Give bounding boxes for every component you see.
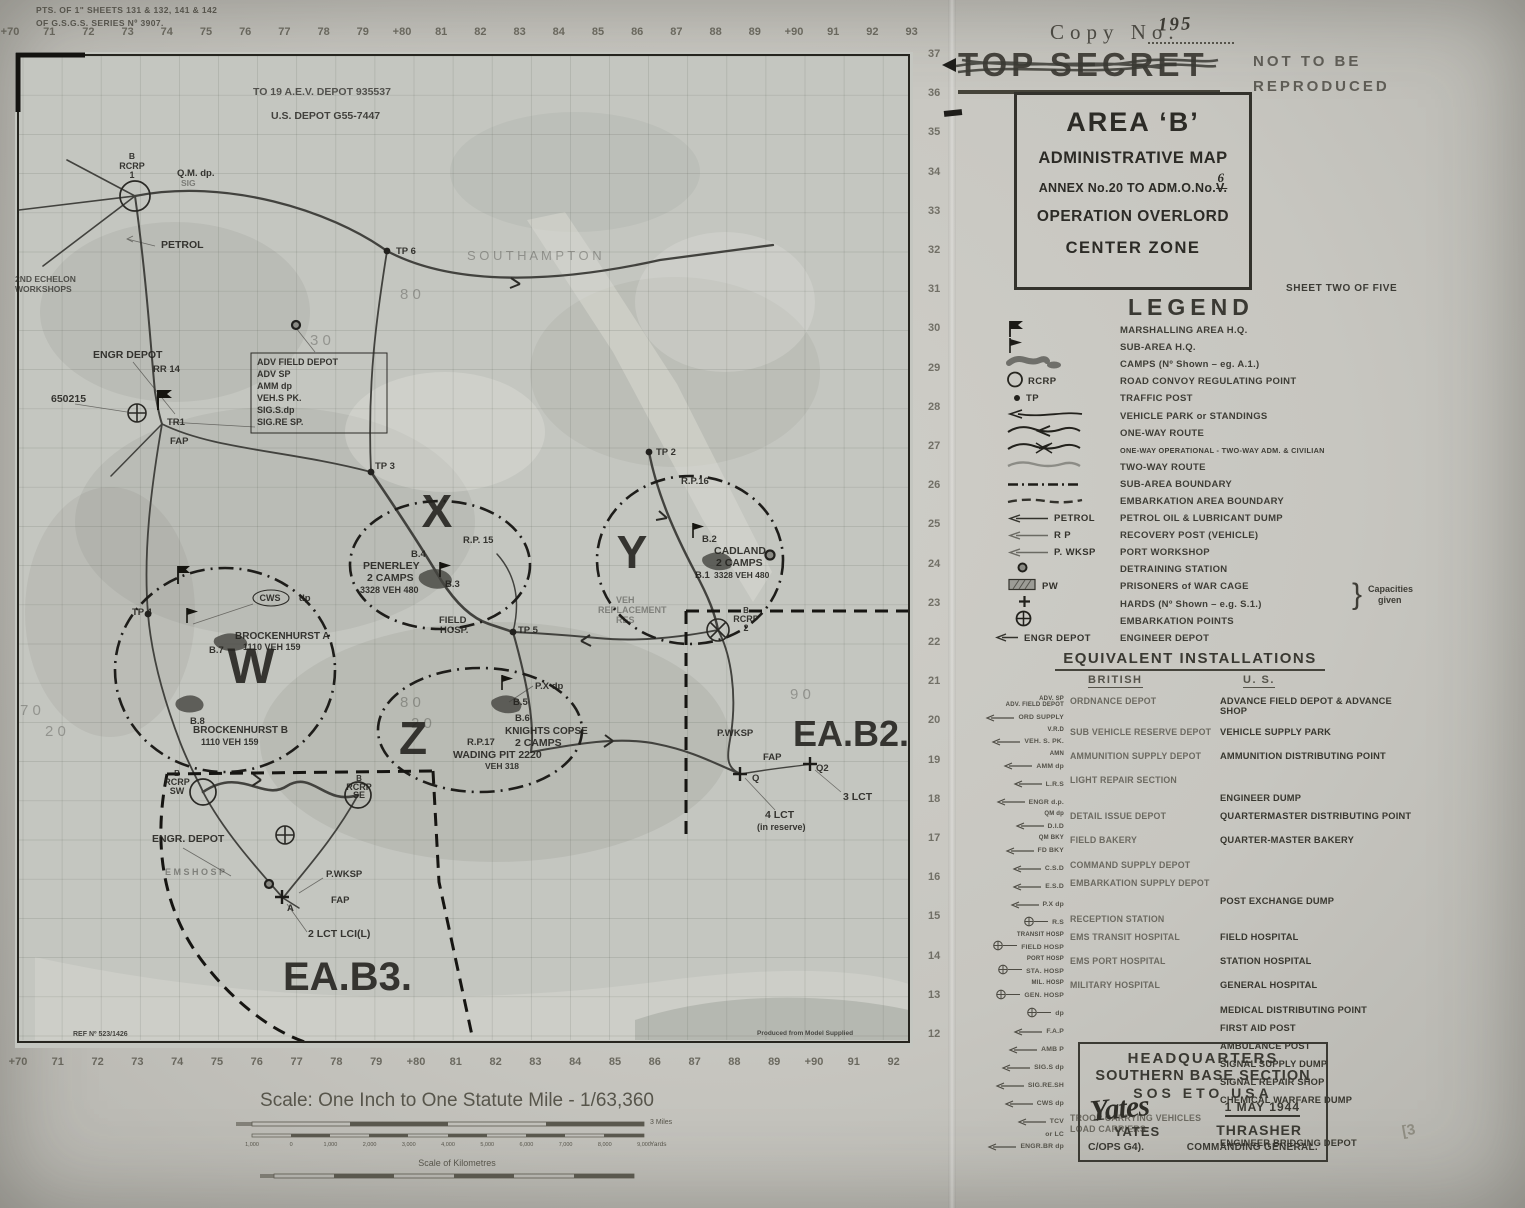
grid-number: 72 (82, 26, 94, 38)
equivalents-row: PORT HOSPSTA. HOSPEMS PORT HOSPITALSTATI… (968, 956, 1414, 980)
map-label: 2 (743, 623, 748, 633)
map-label: 7 0 (20, 702, 41, 719)
equivalents-symbol-cell: ADV. SPADV. FIELD DEPOTORD SUPPLY (968, 696, 1070, 727)
map-region-label: X (422, 485, 453, 537)
arrow-icon (985, 709, 1015, 727)
equivalents-symbol-cell: AMB P (968, 1041, 1070, 1059)
two-way-route-icon (1006, 458, 1084, 476)
map-label: 650215 (51, 393, 86, 405)
grid-number: 20 (928, 714, 940, 726)
copy-number-value: 195 (1158, 13, 1193, 36)
map-label: BROCKENHURST A (235, 631, 330, 642)
equivalents-row: V.R.DVEH. S. PK.SUB VEHICLE RESERVE DEPO… (968, 727, 1414, 751)
capacities-line1: Capacities (1368, 584, 1413, 595)
equivalents-row: E.S.DEMBARKATION SUPPLY DEPOT (968, 878, 1414, 896)
capacities-brace: } (1352, 578, 1362, 612)
equivalents-us: ENGINEER DUMP (1220, 793, 1414, 803)
equivalents-tag: VEH. S. PK. (1024, 738, 1064, 745)
grid-number: 88 (709, 26, 721, 38)
grid-number: 76 (239, 26, 251, 38)
equivalents-symbol-cell: P.X dp (968, 896, 1070, 914)
map-region-label: EA.B3. (283, 955, 412, 999)
grid-number: 82 (489, 1056, 501, 1068)
grid-number: 71 (52, 1056, 64, 1068)
equivalents-symbol-cell: F.A.P (968, 1023, 1070, 1041)
grid-number: 86 (649, 1056, 661, 1068)
edge-dash-mark (944, 109, 963, 117)
hq-name-left: YATES (1114, 1124, 1160, 1139)
petrol-arrow-icon (1006, 510, 1050, 528)
arrow-icon (1008, 1041, 1038, 1059)
map-label: 3328 VEH 480 (714, 570, 770, 580)
title-zone: CENTER ZONE (1017, 239, 1249, 258)
pencil-mark: [3 (1401, 1121, 1417, 1140)
legend-row: DETRAINING STATION (992, 561, 1422, 578)
equivalents-tag: ENGR.BR dp (1020, 1143, 1064, 1150)
equivalents-us: QUARTERMASTER DISTRIBUTING POINT (1220, 811, 1414, 821)
scale-tick: 4,000 (441, 1142, 455, 1148)
map-label: ENGR DEPOT (93, 349, 163, 361)
arrow-icon (1010, 896, 1040, 914)
hq-line2: SOUTHERN BASE SECTION (1080, 1068, 1326, 1084)
equivalents-us: STATION HOSPITAL (1220, 956, 1414, 966)
map-label: E M S H O S P (165, 867, 225, 877)
grid-number: 13 (928, 989, 940, 1001)
grid-number: +80 (393, 26, 412, 38)
pw-cage-icon (1008, 578, 1038, 596)
arrow-icon (995, 1077, 1025, 1095)
map-label: ADV SP (257, 369, 291, 379)
grid-number: 75 (200, 26, 212, 38)
map-label: ENGR. DEPOT (152, 833, 225, 845)
grid-number: 28 (928, 401, 940, 413)
map-label: 8 0 (400, 694, 421, 711)
map-canvas: TO 19 A.E.V. DEPOT 935537U.S. DEPOT G55-… (15, 52, 913, 1048)
grid-number: 84 (569, 1056, 581, 1068)
arrow-icon (1004, 1095, 1034, 1113)
legend-row: EMBARKATION AREA BOUNDARY (992, 493, 1422, 510)
grid-number: 16 (928, 871, 940, 883)
grid-number: 77 (290, 1056, 302, 1068)
equivalents-us: ADVANCE FIELD DEPOT & ADVANCE SHOP (1220, 696, 1414, 716)
equivalents-symbol-cell: L.R.S (968, 775, 1070, 793)
equivalents-tag: or LC (968, 1131, 1064, 1138)
map-label: P.X dp (535, 681, 564, 692)
map-label: TP 4 (132, 607, 153, 618)
equivalents-british: MILITARY HOSPITAL (1070, 980, 1220, 991)
map-label: B.3 (445, 579, 460, 590)
circle-plus-icon (997, 962, 1023, 980)
grid-number: 86 (631, 26, 643, 38)
equivalents-tag: STA. HOSP (1026, 968, 1064, 975)
equivalents-symbol-cell: C.S.D (968, 860, 1070, 878)
legend-row: RCRP ROAD CONVOY REGULATING POINT (992, 373, 1422, 390)
arrow-icon (1012, 860, 1042, 878)
rp-arrow-icon (1006, 527, 1050, 545)
map-label: Q (752, 773, 759, 784)
strikeout-scribble (952, 42, 1222, 88)
grid-number: 18 (928, 793, 940, 805)
equivalents-row: AMNAMM dpAMMUNITION SUPPLY DEPOTAMMUNITI… (968, 751, 1414, 775)
equivalents-tag: R.S (1052, 919, 1064, 926)
map-label: U.S. DEPOT G55-7447 (271, 110, 380, 122)
equivalents-symbol-cell: SIG.RE.SH (968, 1077, 1070, 1095)
equivalents-title: EQUIVALENT INSTALLATIONS (1055, 650, 1325, 671)
map-label: R.P.16 (681, 476, 709, 487)
map-label: P.WKSP (717, 728, 754, 739)
km-label: Scale of Kilometres (418, 1158, 496, 1168)
grid-number: 22 (928, 636, 940, 648)
equivalents-symbol-cell: MIL. HOSPGEN. HOSP (968, 980, 1070, 1004)
equivalents-british: LIGHT REPAIR SECTION (1070, 775, 1220, 786)
map-label: FAP (763, 752, 782, 763)
map-label: FAP (170, 436, 189, 447)
grid-number: +80 (407, 1056, 426, 1068)
equivalents-row: ADV. SPADV. FIELD DEPOTORD SUPPLYORDNANC… (968, 696, 1414, 727)
grid-number: 36 (928, 87, 940, 99)
map-label: SIG.S.dp (257, 405, 295, 415)
equivalents-us: QUARTER-MASTER BAKERY (1220, 835, 1414, 845)
map-label: B.1 (695, 570, 711, 581)
grid-number: 92 (887, 1056, 899, 1068)
equivalents-british: EMBARKATION SUPPLY DEPOT (1070, 878, 1220, 889)
equivalents-us: POST EXCHANGE DUMP (1220, 896, 1414, 906)
grid-number: 75 (211, 1056, 223, 1068)
map-label: R.P.17 (467, 737, 495, 748)
equivalents-tag: dp (1055, 1010, 1064, 1017)
equivalents-british: SUB VEHICLE RESERVE DEPOT (1070, 727, 1220, 738)
map-label: (in reserve) (757, 822, 806, 832)
map-label: 2 0 (45, 723, 66, 740)
grid-number: 85 (592, 26, 604, 38)
equivalents-tag: AMM dp (1036, 763, 1064, 770)
annex-text: ANNEX No.20 TO ADM.O.No. (1039, 181, 1216, 195)
legend-row: ENGR DEPOT ENGINEER DEPOT (992, 630, 1422, 647)
circle-plus-icon (1026, 1005, 1052, 1023)
hq-title-left: C/OPS G4). (1088, 1141, 1144, 1153)
map-label: PETROL (161, 239, 204, 251)
equivalents-symbol-cell: E.S.D (968, 878, 1070, 896)
grid-number: 77 (278, 26, 290, 38)
equivalents-british: EMS PORT HOSPITAL (1070, 956, 1220, 967)
grid-number: 71 (43, 26, 55, 38)
map-label: dp (299, 593, 311, 604)
map-label: B (129, 151, 135, 161)
equivalents-symbol-cell: V.R.DVEH. S. PK. (968, 727, 1070, 751)
one-way-operational-icon (1006, 441, 1084, 459)
equivalents-tag: L.R.S (1046, 781, 1064, 788)
map-region-label: Y (617, 526, 648, 578)
grid-number: 89 (768, 1056, 780, 1068)
signature: Yates (1088, 1089, 1150, 1129)
equivalents-british: ORDNANCE DEPOT (1070, 696, 1220, 707)
grid-number: 81 (450, 1056, 462, 1068)
map-label: 4 LCT (765, 809, 795, 821)
scale-tick: 0 (290, 1142, 293, 1148)
equivalents-tag: F.A.P (1046, 1028, 1064, 1035)
map-label: CWS (260, 593, 281, 603)
equivalents-us: FIELD HOSPITAL (1220, 932, 1414, 942)
grid-number: 14 (928, 950, 940, 962)
legend-row: VEHICLE PARK or STANDINGS (992, 407, 1422, 424)
hq-date: 1 MAY 1944 (1225, 1100, 1300, 1117)
grid-number: +70 (1, 26, 20, 38)
map-label: CADLAND (714, 545, 766, 557)
grid-number: 73 (121, 26, 133, 38)
map-label: REPLACEMENT (598, 605, 667, 615)
equivalents-us: MEDICAL DISTRIBUTING POINT (1220, 1005, 1414, 1015)
equivalents-british: COMMAND SUPPLY DEPOT (1070, 860, 1220, 871)
scale-tick: 6,000 (520, 1142, 534, 1148)
equivalents-british: DETAIL ISSUE DEPOT (1070, 811, 1220, 822)
miles-unit: 3 Miles (650, 1119, 673, 1126)
scale-tick: 7,000 (559, 1142, 573, 1148)
grid-number: 91 (848, 1056, 860, 1068)
grid-number: 23 (928, 597, 940, 609)
equivalents-col-british: BRITISH (1088, 674, 1143, 688)
map-label: RES (616, 615, 635, 625)
grid-number: 34 (928, 166, 940, 178)
map-label: B.5 (513, 697, 529, 708)
map-region-label: EA.B2. (793, 713, 909, 754)
capacities-line2: given (1368, 595, 1413, 606)
map-label: 2 CAMPS (716, 557, 763, 569)
one-way-route-icon (1006, 424, 1084, 442)
hq-signature-box: HEADQUARTERS SOUTHERN BASE SECTION SOS E… (1078, 1042, 1328, 1162)
map-label: 1110 VEH 159 (201, 737, 259, 747)
embarkation-boundary-icon (1006, 492, 1084, 510)
equivalents-symbol-cell: ENGR d.p. (968, 793, 1070, 811)
grid-number: 93 (905, 26, 917, 38)
hq-line1: HEADQUARTERS (1080, 1050, 1326, 1067)
map-label: BROCKENHURST B (193, 725, 288, 736)
map-label: 3328 VEH 480 (360, 585, 419, 595)
map-label: P.WKSP (326, 869, 363, 880)
equivalents-tag: ORD SUPPLY (1018, 714, 1064, 721)
grid-number: 78 (330, 1056, 342, 1068)
map-label: 8 0 (400, 286, 421, 303)
legend-row: MARSHALLING AREA H.Q. (992, 322, 1422, 339)
capacities-note: Capacities given (1368, 584, 1413, 606)
map-label: TP 2 (656, 447, 676, 458)
map-label: SIG (181, 178, 196, 188)
legend-row: ONE-WAY ROUTE (992, 425, 1422, 442)
grid-number: +90 (805, 1056, 824, 1068)
grid-number: 89 (749, 26, 761, 38)
equivalents-row: QM dpD.I.DDETAIL ISSUE DEPOTQUARTERMASTE… (968, 811, 1414, 835)
map-label: 1110 VEH 159 (243, 642, 301, 652)
grid-number: 26 (928, 479, 940, 491)
grid-number: 33 (928, 205, 940, 217)
map-label: 2 0 (411, 715, 432, 732)
port-workshop-arrow-icon (1006, 544, 1050, 562)
equivalents-row: R.SRECEPTION STATION (968, 914, 1414, 932)
map-label: TP 5 (518, 625, 539, 636)
map-label: ADV FIELD DEPOT (257, 357, 339, 367)
equivalents-british: AMMUNITION SUPPLY DEPOT (1070, 751, 1220, 762)
circle-plus-icon (1023, 914, 1049, 932)
map-label: Produced from Model Supplied (757, 1030, 853, 1037)
equivalents-us: VEHICLE SUPPLY PARK (1220, 727, 1414, 737)
legend-row: SUB-AREA BOUNDARY (992, 476, 1422, 493)
corner-note-line1: PTS. OF 1" SHEETS 131 & 132, 141 & 142 (36, 4, 217, 17)
equivalents-tag: FIELD HOSP (1021, 944, 1064, 951)
equivalents-tag: CWS dp (1037, 1100, 1064, 1107)
map-label: RR 14 (153, 364, 181, 375)
grid-number: 27 (928, 440, 940, 452)
equivalents-british: RECEPTION STATION (1070, 914, 1220, 925)
map-label: 2 CAMPS (367, 572, 414, 584)
grid-number: 87 (670, 26, 682, 38)
tp-dot-icon (1012, 390, 1022, 408)
arrow-icon (987, 1138, 1017, 1156)
grid-number: 24 (928, 558, 940, 570)
grid-number: 25 (928, 518, 940, 530)
arrow-icon (996, 793, 1026, 811)
grid-number: 85 (609, 1056, 621, 1068)
grid-number: 30 (928, 322, 940, 334)
map-title-box: AREA ‘B’ ADMINISTRATIVE MAP ANNEX No.20 … (1014, 92, 1252, 290)
grid-number: 78 (317, 26, 329, 38)
scale-tick: 8,000 (598, 1142, 612, 1148)
grid-number: 73 (131, 1056, 143, 1068)
arrow-icon (991, 733, 1021, 751)
scale-tick: 1,000 (245, 1142, 259, 1148)
equivalents-row: dpMEDICAL DISTRIBUTING POINT (968, 1005, 1414, 1023)
legend-row: P. WKSP PORT WORKSHOP (992, 544, 1422, 561)
arrow-icon (1013, 1023, 1043, 1041)
grid-number: 19 (928, 754, 940, 766)
map-label: WADING PIT 2220 (453, 749, 542, 761)
map-label: 1 (129, 170, 134, 180)
annex-correction: 6 (1218, 170, 1225, 186)
map-label: TP 3 (375, 461, 395, 472)
yards-bar: 1,00001,0002,0003,0004,0005,0006,0007,00… (245, 1134, 667, 1148)
equivalents-symbol-cell: R.S (968, 914, 1070, 932)
map-label: TO 19 A.E.V. DEPOT 935537 (253, 86, 391, 98)
equivalents-tag: GEN. HOSP (1024, 992, 1064, 999)
grid-number: +70 (9, 1056, 28, 1068)
equivalents-us: GENERAL HOSPITAL (1220, 980, 1414, 990)
title-admin-map: ADMINISTRATIVE MAP (1017, 149, 1249, 168)
title-operation: OPERATION OVERLORD (1017, 208, 1249, 226)
map-label: HOSP. (440, 625, 468, 636)
vehicle-park-icon (1006, 407, 1084, 425)
equivalents-col-us: U. S. (1243, 674, 1275, 688)
scale-title: Scale: One Inch to One Statute Mile - 1/… (260, 1090, 654, 1111)
grid-number: 79 (357, 26, 369, 38)
title-annex: ANNEX No.20 TO ADM.O.No.V.6 (1017, 181, 1249, 195)
equivalents-symbol-cell: PORT HOSPSTA. HOSP (968, 956, 1070, 980)
legend-row: ONE-WAY OPERATIONAL - TWO-WAY ADM. & CIV… (992, 442, 1422, 459)
map-label: AMM dp (257, 381, 292, 391)
grid-number: 35 (928, 126, 940, 138)
grid-number: 17 (928, 832, 940, 844)
map-label: A (287, 903, 294, 914)
map-label: VEH.S PK. (257, 393, 302, 403)
map-label: 3 LCT (843, 791, 873, 803)
equivalents-symbol-cell: TRANSIT HOSPFIELD HOSP (968, 932, 1070, 956)
legend-row: SUB-AREA H.Q. (992, 339, 1422, 356)
equivalents-tag: C.S.D (1045, 865, 1064, 872)
legend-row: PETROL PETROL OIL & LUBRICANT DUMP (992, 510, 1422, 527)
equivalents-symbol-cell: TCVor LC (968, 1113, 1070, 1138)
sub-area-boundary-icon (1006, 475, 1084, 493)
grid-number: 92 (866, 26, 878, 38)
equivalents-row: F.A.PFIRST AID POST (968, 1023, 1414, 1041)
grid-number: 76 (251, 1056, 263, 1068)
equivalents-row: C.S.DCOMMAND SUPPLY DEPOT (968, 860, 1414, 878)
scale-tick: 9,000 (637, 1142, 651, 1148)
grid-number: 83 (529, 1056, 541, 1068)
equivalents-symbol-cell: ENGR.BR dp (968, 1138, 1070, 1156)
equivalents-us: FIRST AID POST (1220, 1023, 1414, 1033)
arrow-icon (1015, 817, 1045, 835)
map-label: WORKSHOPS (15, 284, 72, 294)
not-to-be-reproduced: NOT TO BE REPRODUCED (1253, 50, 1390, 100)
equivalents-symbol-cell: AMNAMM dp (968, 751, 1070, 775)
map-label: B.4 (411, 549, 427, 560)
legend-row: EMBARKATION POINTS (992, 613, 1422, 630)
grid-number: 74 (171, 1056, 183, 1068)
map-label: B.6 (515, 713, 530, 724)
scale-tick: 3,000 (402, 1142, 416, 1148)
not-line1: NOT TO BE (1253, 50, 1390, 75)
equivalents-tag: SIG.RE.SH (1028, 1082, 1064, 1089)
engr-depot-arrow-icon (994, 629, 1020, 647)
map-label: Q2 (816, 763, 829, 774)
map-label: B.2 (702, 534, 717, 545)
legend-row: R P RECOVERY POST (VEHICLE) (992, 527, 1422, 544)
grid-number: 29 (928, 362, 940, 374)
map-label: VEH 318 (485, 761, 519, 771)
equivalents-tag: TCV (1050, 1118, 1064, 1125)
grid-number: +90 (785, 26, 804, 38)
map-label: 2 LCT LCI(L) (308, 928, 370, 940)
legend-row: TP TRAFFIC POST (992, 390, 1422, 407)
not-line2: REPRODUCED (1253, 75, 1390, 100)
arrow-icon (1003, 757, 1033, 775)
grid-number: 81 (435, 26, 447, 38)
equivalents-tag: D.I.D (1048, 823, 1064, 830)
scale-block: Scale: One Inch to One Statute Mile - 1/… (232, 1082, 682, 1197)
map-label: SE (353, 790, 365, 800)
sub-area-flag-icon (1006, 338, 1026, 358)
equivalents-tag: FD BKY (1038, 847, 1065, 854)
annex-struck-v: V.6 (1216, 181, 1227, 195)
map-label: R.P. 15 (463, 535, 494, 546)
map-label: S O U T H A M P T O N (467, 248, 602, 263)
grid-number: 15 (928, 910, 940, 922)
grid-number: 72 (91, 1056, 103, 1068)
equivalents-symbol-cell: CWS dp (968, 1095, 1070, 1113)
map-label: VEH (616, 595, 635, 605)
hq-title-right: COMMANDING GENERAL. (1187, 1142, 1318, 1153)
map-label: 2ND ECHELON (15, 274, 76, 284)
grid-number: 87 (688, 1056, 700, 1068)
equivalents-tag: SIG.S dp (1034, 1064, 1064, 1071)
arrow-icon (1017, 1113, 1047, 1131)
equivalents-tag: AMB P (1041, 1046, 1064, 1053)
scale-tick: 1,000 (324, 1142, 338, 1148)
map-label: SW (170, 786, 185, 796)
yards-unit: Yards (650, 1141, 667, 1148)
grid-number: 74 (161, 26, 173, 38)
grid-number: 91 (827, 26, 839, 38)
sheet-note: SHEET TWO OF FIVE (1286, 283, 1397, 294)
equivalents-symbol-cell: SIG.S dp (968, 1059, 1070, 1077)
equivalents-row: QM BKYFD BKYFIELD BAKERYQUARTER-MASTER B… (968, 835, 1414, 859)
